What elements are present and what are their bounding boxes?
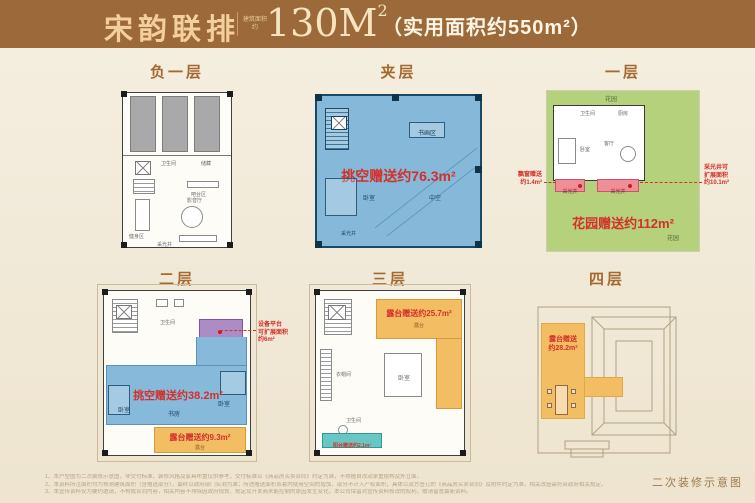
chair-icon — [547, 389, 552, 394]
wall-corner — [315, 241, 322, 248]
room-label-lightwell: 采光井 — [610, 189, 625, 195]
red-dot — [628, 184, 632, 188]
room-label-bedroom: 卧室 — [580, 146, 590, 153]
annotation-line: 采光井可 — [704, 165, 754, 173]
bed-icon — [558, 138, 576, 164]
annotation-lightwell-expand: 采光井可 扩展面积 约10.1m² — [704, 165, 754, 188]
dining-table-icon — [620, 146, 636, 162]
wall-corner — [102, 450, 108, 456]
gift-label-terrace: 露台赠送约25.7m² — [377, 308, 461, 319]
garden-label-top: 花园 — [605, 94, 617, 103]
room-label-storage: 储藏 — [201, 160, 211, 167]
chair-icon — [571, 389, 576, 394]
room-label-study: 书画区 — [418, 131, 436, 137]
wall-corner — [121, 91, 127, 97]
floorplan-third: 露台赠送约25.7m² 露台 衣帽间 卧室 卫生间 阳台赠送约2.1m² — [315, 290, 465, 456]
wall-corner — [475, 94, 482, 101]
floor-title-mezzanine: 夹层 — [315, 61, 482, 82]
room-label-terrace: 露台 — [155, 444, 245, 451]
room-label-lightwell: 采光井 — [341, 230, 356, 237]
floorplan-first-garden: 花园 卫生间 厨房 卧室 客厅 采光井 采光井 花园赠送约112m² 花园 — [546, 90, 700, 252]
wall-corner — [315, 94, 322, 101]
header-divider — [237, 12, 238, 36]
floorplan-basement: 卫生间 储藏 吧台区 健身区 影音厅 采光井 — [122, 92, 232, 248]
annotation-line: 设备平台 — [258, 322, 310, 330]
treadmill-icon — [135, 199, 150, 231]
floor-title-first: 一层 — [546, 61, 700, 82]
floorplan-mezzanine: 书画区 挑空赠送约76.3m² 卧室 中空 采光井 — [315, 94, 482, 248]
roof-terrace-gift-area — [585, 377, 623, 397]
room-label-cloakroom: 衣帽间 — [336, 371, 351, 378]
wall-corner — [227, 91, 233, 97]
area-tag-line1: 建筑面积 — [243, 16, 267, 24]
wall-corner — [246, 289, 252, 295]
wall-corner — [227, 242, 233, 248]
wall-corner — [460, 450, 466, 456]
room-label-living: 客厅 — [604, 140, 614, 147]
wall-corner — [475, 166, 482, 173]
red-dot — [578, 184, 582, 188]
room-label-media: 影音厅 — [187, 197, 202, 204]
disclaimer-line: 1、本户型图为二次装修示意图，非交付标准，装修风格及家具布置仅供参考，交付标准以… — [45, 474, 645, 482]
elevator-icon — [135, 161, 151, 175]
gift-line: 露台赠送 — [543, 335, 583, 344]
room-label-void: 中空 — [429, 193, 441, 202]
room-label-lightwell: 采光井 — [157, 241, 172, 248]
area-tag-line2: 约 — [243, 24, 267, 32]
parking-slot — [130, 96, 156, 152]
room-label-terrace: 露台 — [377, 322, 461, 329]
gift-label-terrace: 露台赠送约9.3m² — [155, 432, 245, 443]
bar-counter-icon — [187, 181, 219, 188]
annotation-equipment-platform: 设备平台 可扩展面积 约6m² — [258, 322, 310, 345]
room-label-kitchen: 厨房 — [618, 110, 628, 117]
caption-renovation: 二次装修示意图 — [652, 474, 743, 490]
dashed-connector — [640, 182, 702, 183]
gift-label-garden: 花园赠送约112m² — [547, 213, 699, 232]
desk-icon: 书画区 — [409, 122, 445, 138]
gift-line: 约28.2m² — [543, 344, 583, 353]
round-table-icon — [181, 206, 203, 228]
lightwell-strip-left: 采光井 — [555, 179, 585, 192]
wall-line — [123, 155, 231, 156]
annotation-line: 约1.4m² — [492, 180, 542, 188]
wall-corner — [314, 450, 320, 456]
floor-title-basement: 负一层 — [122, 61, 232, 82]
elevator-icon — [331, 116, 347, 130]
annotation-line: 飘窗赠送 — [492, 172, 542, 180]
chair-icon — [571, 403, 576, 408]
wall-corner — [314, 289, 320, 295]
terrace-gift-area: 露台赠送约9.3m² 露台 — [154, 427, 246, 453]
room-label-study: 书房 — [168, 409, 180, 418]
floor-title-fourth: 四层 — [537, 268, 677, 289]
wardrobe-icon — [320, 349, 332, 401]
outdoor-table-icon — [555, 385, 568, 415]
parking-slot — [194, 96, 220, 152]
dashed-connector — [544, 182, 556, 183]
annotation-bay-window: 飘窗赠送 约1.4m² — [492, 172, 542, 187]
garden-label-bottom: 花园 — [667, 233, 679, 242]
annotation-line: 可扩展面积 — [258, 330, 310, 338]
area-tag: 建筑面积 约 — [243, 16, 267, 32]
header-band: 宋韵联排 建筑面积 约 130M2 （实用面积约550m²） — [0, 0, 755, 48]
wall-corner — [460, 289, 466, 295]
sink-icon — [156, 299, 168, 307]
disclaimer-line: 2、本资料所注面积均为预测建筑面积（含赠送部分），最终以政府部门实测为准；所述赠… — [45, 482, 645, 490]
disclaimer-notes: 1、本户型图为二次装修示意图，非交付标准，装修风格及家具布置仅供参考，交付标准以… — [45, 474, 645, 497]
terrace-gift-area: 露台赠送约25.7m² 露台 — [376, 299, 462, 339]
area-number: 130M — [266, 1, 377, 45]
gift-label-roof-terrace: 露台赠送 约28.2m² — [543, 335, 583, 353]
wall-corner — [246, 450, 252, 456]
lightwell-strip-right: 采光井 — [597, 179, 639, 192]
wall-corner — [392, 94, 399, 101]
void-gift-area — [196, 337, 247, 366]
room-label-bath: 卫生间 — [580, 110, 595, 117]
annotation-line: 约6m² — [258, 337, 310, 345]
floorplan-poster: 宋韵联排 建筑面积 约 130M2 （实用面积约550m²） 负一层 夹层 一层… — [0, 0, 755, 503]
room-label-bedroom: 卧室 — [363, 193, 375, 202]
wall-corner — [121, 242, 127, 248]
elevator-icon — [116, 305, 132, 319]
terrace-gift-area — [436, 339, 462, 409]
balcony-gift-area: 阳台赠送约2.1m² — [322, 433, 382, 448]
room-label-bedroom: 卧室 — [218, 399, 230, 408]
sofa-icon — [179, 235, 217, 242]
parking-slot — [162, 96, 188, 152]
floorplan-fourth: 露台赠送 约28.2m² — [537, 293, 677, 461]
stairs-icon — [133, 179, 155, 194]
dashed-connector — [220, 330, 256, 331]
gift-label-balcony: 阳台赠送约2.1m² — [333, 443, 371, 449]
room-label-bath: 卫生间 — [160, 319, 175, 326]
bed-icon — [325, 178, 357, 216]
room-label-lightwell: 采光井 — [562, 189, 577, 195]
usable-area: （实用面积约550m²） — [382, 11, 592, 40]
room-label-bath: 卫生间 — [346, 417, 361, 424]
room-label-gym: 健身区 — [129, 233, 144, 240]
disclaimer-line: 3、本宣传资料仅为要约邀请，不构成合同内容，相关内容不排除因政府规划、规定及开发… — [45, 489, 645, 497]
elevator-icon — [328, 305, 346, 320]
floorplan-second: 卫生间 卫生间 挑空赠送约38.2m² 卧室 书房 卧室 露台赠送约9.3m² … — [103, 290, 251, 456]
annotation-line: 约10.1m² — [704, 180, 754, 188]
chair-icon — [547, 403, 552, 408]
project-title: 宋韵联排 — [104, 6, 240, 48]
annotation-line: 扩展面积 — [704, 173, 754, 181]
room-label-bedroom: 卧室 — [398, 373, 410, 382]
room-label-bath: 卫生间 — [161, 160, 176, 167]
toilet-icon — [174, 299, 184, 307]
wall-corner — [475, 241, 482, 248]
area-value: 130M2 — [266, 1, 388, 45]
wall-corner — [102, 289, 108, 295]
first-floor-house: 卫生间 厨房 卧室 客厅 — [553, 105, 645, 181]
room-label-bedroom: 卧室 — [118, 405, 130, 414]
